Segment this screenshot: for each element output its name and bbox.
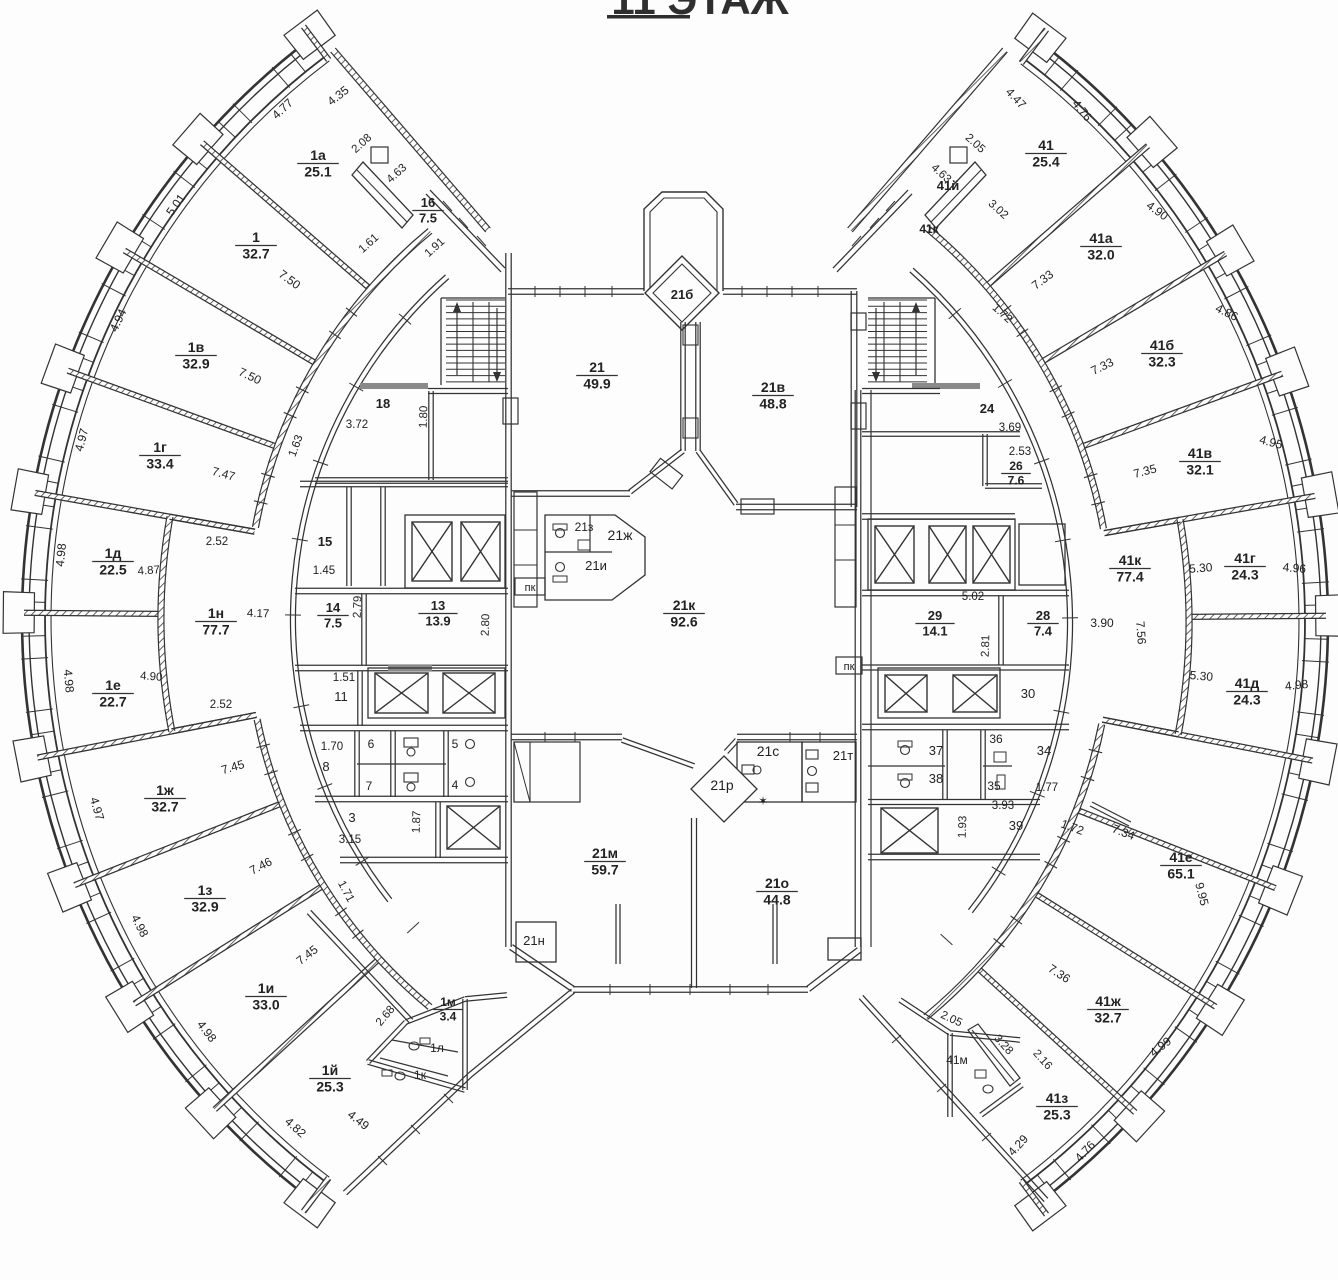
svg-text:59.7: 59.7 — [591, 862, 618, 878]
svg-text:1.77: 1.77 — [1036, 782, 1058, 794]
svg-text:24: 24 — [980, 401, 995, 416]
svg-text:4.96: 4.96 — [1282, 560, 1307, 576]
svg-text:1в: 1в — [188, 339, 205, 355]
svg-text:1л: 1л — [430, 1041, 444, 1055]
svg-text:4.98: 4.98 — [1284, 677, 1309, 693]
svg-text:92.6: 92.6 — [670, 614, 697, 630]
svg-text:24.3: 24.3 — [1231, 567, 1258, 583]
svg-text:7: 7 — [366, 779, 373, 793]
svg-text:1ж: 1ж — [156, 782, 175, 798]
svg-text:41а: 41а — [1089, 230, 1113, 246]
svg-text:32.1: 32.1 — [1186, 462, 1213, 478]
svg-text:34: 34 — [1037, 743, 1051, 758]
svg-text:13: 13 — [431, 598, 445, 613]
svg-text:41б: 41б — [1150, 337, 1175, 353]
svg-text:1к: 1к — [414, 1068, 427, 1082]
svg-text:4.17: 4.17 — [247, 608, 270, 621]
svg-text:11 ЭТАЖ: 11 ЭТАЖ — [611, 0, 789, 23]
svg-text:32.7: 32.7 — [242, 246, 269, 262]
svg-text:3: 3 — [348, 810, 355, 825]
svg-text:25.3: 25.3 — [316, 1079, 343, 1095]
svg-text:41е: 41е — [1169, 849, 1193, 865]
svg-text:пк: пк — [525, 582, 536, 594]
svg-text:11: 11 — [334, 689, 348, 704]
svg-text:21с: 21с — [757, 743, 780, 759]
svg-text:21т: 21т — [833, 748, 853, 763]
svg-text:5.30: 5.30 — [1189, 668, 1214, 684]
svg-text:33.0: 33.0 — [252, 997, 279, 1013]
svg-text:2.52: 2.52 — [206, 536, 228, 548]
svg-text:21з: 21з — [575, 520, 594, 534]
svg-text:21: 21 — [589, 359, 605, 375]
svg-text:32.9: 32.9 — [191, 899, 218, 915]
svg-text:7.5: 7.5 — [419, 211, 437, 226]
svg-text:21р: 21р — [710, 777, 734, 793]
svg-text:1г: 1г — [153, 439, 167, 455]
svg-text:1й: 1й — [322, 1062, 338, 1078]
svg-text:16: 16 — [421, 195, 435, 210]
svg-text:32.7: 32.7 — [151, 799, 178, 815]
svg-text:7.4: 7.4 — [1034, 624, 1053, 639]
svg-text:25.3: 25.3 — [1043, 1107, 1070, 1123]
svg-text:21в: 21в — [761, 379, 786, 395]
svg-text:14: 14 — [326, 600, 341, 615]
svg-text:7.5: 7.5 — [324, 616, 342, 631]
svg-text:3.90: 3.90 — [1090, 616, 1114, 630]
svg-text:21м: 21м — [592, 845, 618, 861]
svg-text:4.90: 4.90 — [140, 670, 163, 684]
svg-text:1.51: 1.51 — [333, 672, 355, 684]
svg-text:1.93: 1.93 — [957, 815, 970, 838]
svg-text:65.1: 65.1 — [1167, 866, 1194, 882]
svg-text:5: 5 — [452, 737, 459, 751]
svg-text:6: 6 — [368, 737, 375, 751]
svg-text:41к: 41к — [1119, 552, 1143, 568]
svg-text:пк: пк — [844, 661, 855, 673]
svg-text:48.8: 48.8 — [759, 396, 786, 412]
svg-text:14.1: 14.1 — [922, 624, 947, 639]
svg-text:21к: 21к — [673, 597, 697, 613]
svg-text:1.87: 1.87 — [411, 810, 424, 833]
svg-text:37: 37 — [929, 743, 943, 758]
svg-text:77.4: 77.4 — [1116, 569, 1143, 585]
svg-text:2.52: 2.52 — [210, 699, 232, 711]
svg-text:1.70: 1.70 — [321, 741, 343, 753]
svg-text:21и: 21и — [585, 558, 607, 573]
svg-text:4.98: 4.98 — [53, 542, 69, 567]
svg-text:41м: 41м — [946, 1053, 968, 1067]
svg-text:18: 18 — [376, 396, 390, 411]
svg-text:3.72: 3.72 — [346, 419, 368, 431]
svg-text:1м: 1м — [440, 995, 456, 1009]
svg-text:7.6: 7.6 — [1008, 474, 1025, 488]
svg-text:22.7: 22.7 — [99, 694, 126, 710]
svg-text:2.79: 2.79 — [352, 595, 365, 618]
svg-text:41з: 41з — [1046, 1090, 1069, 1106]
svg-text:1.80: 1.80 — [418, 405, 431, 428]
svg-text:1а: 1а — [310, 147, 326, 163]
svg-text:41: 41 — [1038, 137, 1054, 153]
svg-text:1д: 1д — [105, 545, 122, 561]
svg-text:32.9: 32.9 — [182, 356, 209, 372]
svg-text:22.5: 22.5 — [99, 562, 126, 578]
svg-text:4.98: 4.98 — [61, 669, 77, 694]
svg-text:8: 8 — [322, 759, 329, 774]
svg-text:28: 28 — [1036, 608, 1050, 623]
svg-text:3.69: 3.69 — [999, 422, 1021, 434]
svg-text:21ж: 21ж — [608, 527, 634, 543]
svg-text:41в: 41в — [1188, 445, 1213, 461]
svg-text:30: 30 — [1021, 686, 1035, 701]
svg-text:3.15: 3.15 — [339, 834, 361, 846]
svg-text:4: 4 — [452, 778, 459, 792]
svg-text:5.30: 5.30 — [1189, 560, 1214, 576]
svg-text:21б: 21б — [671, 287, 694, 302]
svg-text:✶: ✶ — [758, 794, 768, 808]
svg-text:44.8: 44.8 — [763, 892, 790, 908]
svg-text:25.1: 25.1 — [304, 164, 331, 180]
svg-text:36: 36 — [989, 732, 1003, 746]
svg-text:1.45: 1.45 — [313, 565, 335, 577]
svg-text:26: 26 — [1009, 459, 1023, 473]
svg-text:25.4: 25.4 — [1032, 154, 1059, 170]
svg-text:1и: 1и — [258, 980, 274, 996]
svg-text:1з: 1з — [198, 882, 213, 898]
svg-text:38: 38 — [929, 771, 943, 786]
svg-text:4.87: 4.87 — [137, 564, 160, 578]
svg-text:41г: 41г — [1234, 550, 1256, 566]
svg-text:2.80: 2.80 — [480, 613, 493, 636]
svg-text:77.7: 77.7 — [202, 622, 229, 638]
svg-text:2.53: 2.53 — [1009, 446, 1031, 458]
svg-text:15: 15 — [318, 534, 332, 549]
svg-text:21о: 21о — [765, 875, 789, 891]
svg-text:5.02: 5.02 — [962, 591, 984, 603]
svg-text:35: 35 — [987, 779, 1001, 793]
svg-text:32.7: 32.7 — [1094, 1010, 1121, 1026]
svg-text:21н: 21н — [523, 933, 545, 948]
svg-text:3.4: 3.4 — [440, 1010, 457, 1024]
svg-text:24.3: 24.3 — [1233, 692, 1260, 708]
svg-text:33.4: 33.4 — [146, 456, 173, 472]
svg-text:1н: 1н — [208, 605, 224, 621]
svg-text:41ж: 41ж — [1095, 993, 1122, 1009]
svg-text:41к: 41к — [919, 222, 939, 236]
svg-text:2.81: 2.81 — [980, 634, 993, 657]
svg-text:1: 1 — [252, 229, 260, 245]
svg-text:13.9: 13.9 — [425, 614, 450, 629]
svg-text:29: 29 — [928, 608, 942, 623]
svg-text:41д: 41д — [1235, 675, 1260, 691]
svg-text:32.3: 32.3 — [1148, 354, 1175, 370]
svg-text:49.9: 49.9 — [583, 376, 610, 392]
svg-text:3.93: 3.93 — [992, 800, 1014, 812]
svg-text:39: 39 — [1009, 818, 1023, 833]
svg-text:32.0: 32.0 — [1087, 247, 1114, 263]
svg-text:7.56: 7.56 — [1133, 621, 1149, 646]
svg-text:1е: 1е — [105, 677, 121, 693]
